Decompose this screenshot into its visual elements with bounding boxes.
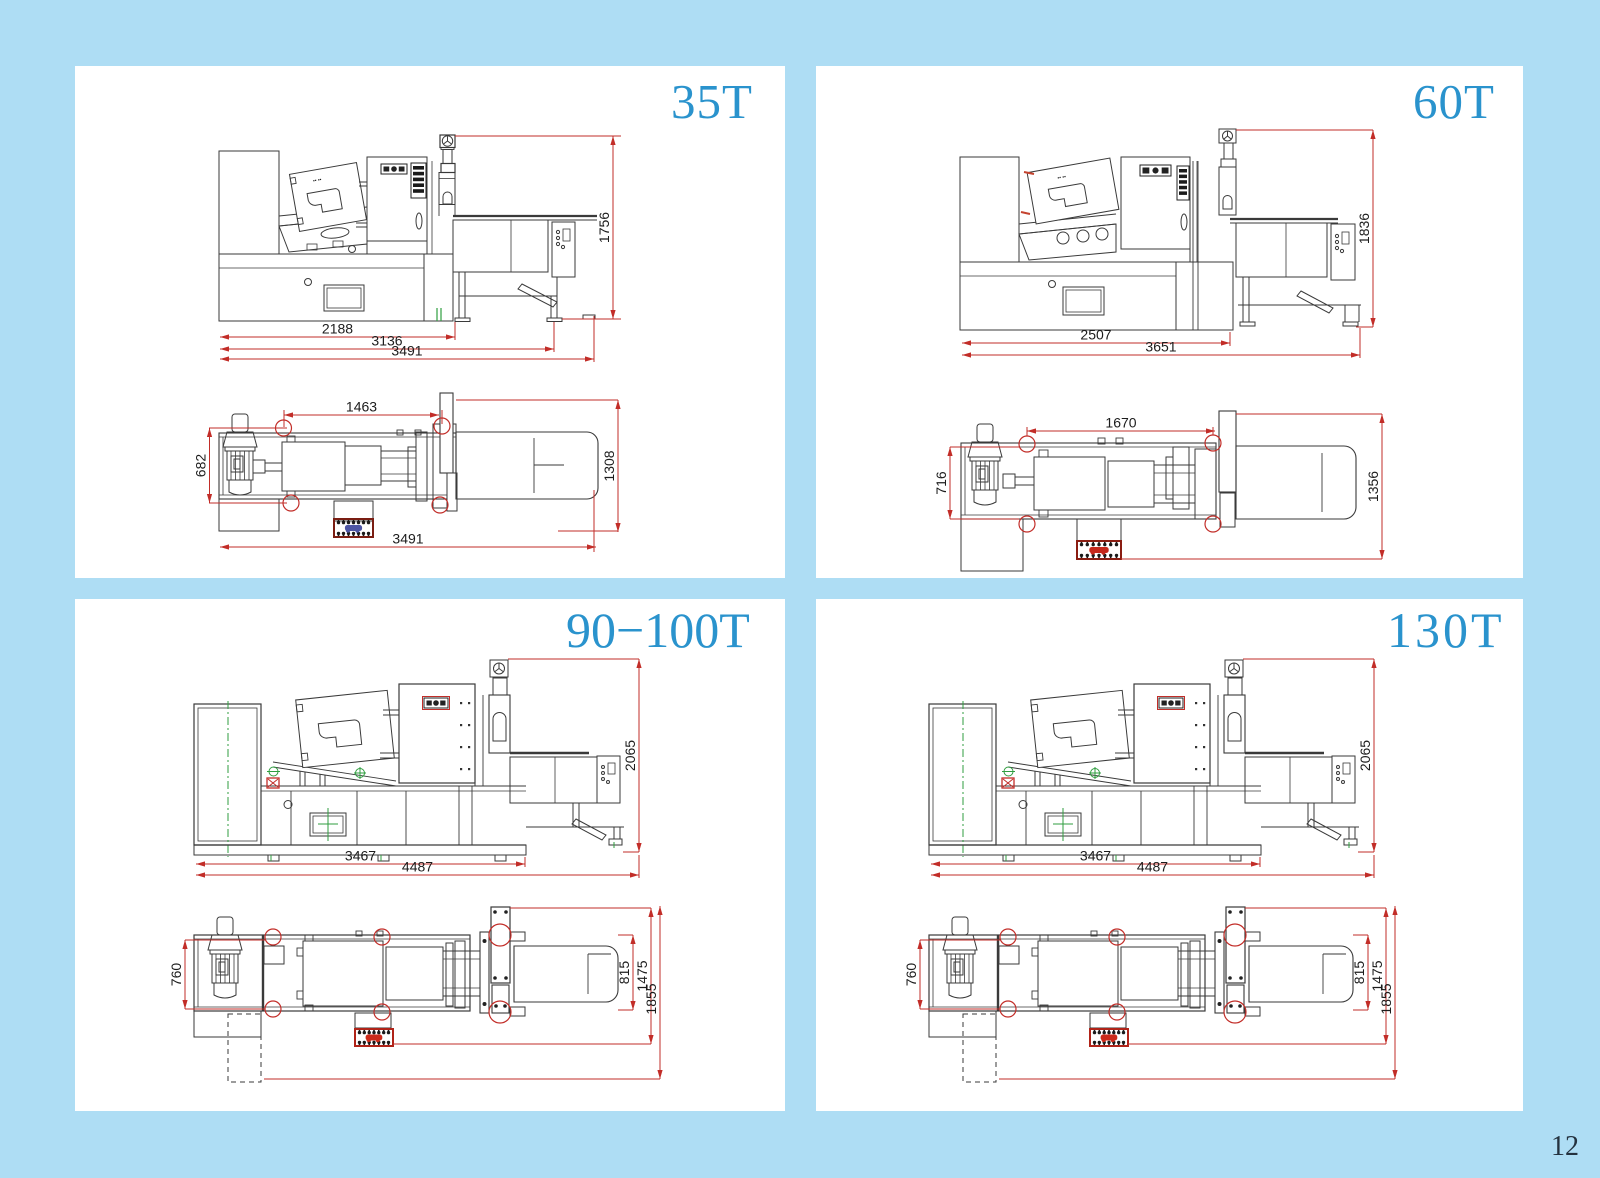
svg-text:1836: 1836	[1356, 213, 1372, 244]
svg-text:3651: 3651	[1145, 339, 1176, 355]
svg-text:1855: 1855	[1378, 983, 1394, 1014]
svg-text:1463: 1463	[346, 399, 377, 415]
svg-text:1756: 1756	[596, 212, 612, 243]
svg-text:1308: 1308	[601, 450, 617, 481]
svg-text:760: 760	[903, 963, 919, 987]
svg-text:2507: 2507	[1080, 327, 1111, 343]
svg-text:682: 682	[193, 454, 209, 478]
svg-text:4487: 4487	[402, 859, 433, 875]
svg-text:2188: 2188	[322, 321, 353, 337]
svg-text:815: 815	[1351, 961, 1367, 985]
svg-text:716: 716	[933, 471, 949, 495]
svg-text:3491: 3491	[391, 343, 422, 359]
svg-text:760: 760	[168, 963, 184, 987]
svg-text:2065: 2065	[1357, 740, 1373, 771]
svg-text:3467: 3467	[345, 848, 376, 864]
svg-text:1670: 1670	[1105, 415, 1136, 431]
svg-text:4487: 4487	[1137, 859, 1168, 875]
svg-text:3491: 3491	[392, 531, 423, 547]
svg-text:2065: 2065	[622, 740, 638, 771]
svg-text:1356: 1356	[1365, 471, 1381, 502]
svg-text:815: 815	[616, 961, 632, 985]
svg-text:3467: 3467	[1080, 848, 1111, 864]
svg-text:1855: 1855	[643, 983, 659, 1014]
